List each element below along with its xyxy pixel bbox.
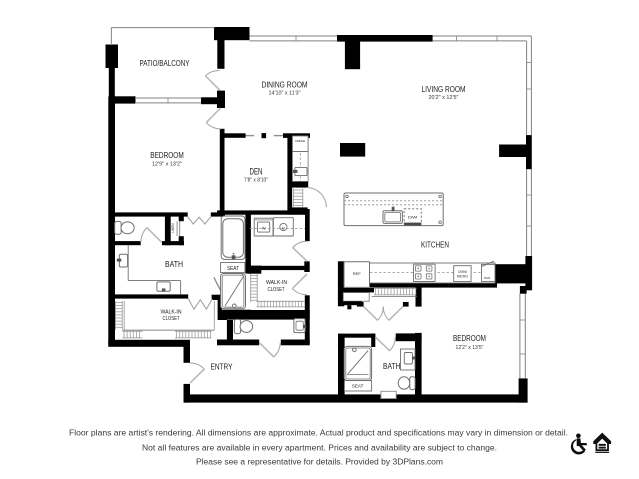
svg-text:LINEN: LINEN [171, 223, 175, 233]
svg-text:12'9" x 13'2": 12'9" x 13'2" [152, 162, 182, 168]
svg-text:7'8" x 8'10": 7'8" x 8'10" [244, 177, 268, 183]
svg-text:PAN.: PAN. [484, 276, 491, 280]
svg-text:FRIDGE: FRIDGE [295, 139, 305, 143]
svg-text:BEDROOM: BEDROOM [150, 150, 184, 160]
svg-text:Please see a representative fo: Please see a representative for details.… [196, 457, 443, 466]
svg-text:DEN: DEN [250, 167, 263, 178]
svg-text:KITCHEN: KITCHEN [421, 240, 449, 250]
svg-text:CLOSET: CLOSET [163, 316, 180, 322]
svg-text:14'10" x 11'3": 14'10" x 11'3" [269, 91, 301, 97]
svg-text:Floor plans are artist's rende: Floor plans are artist's rendering. All … [69, 429, 568, 438]
svg-text:LIVING ROOM: LIVING ROOM [422, 84, 466, 94]
svg-text:MICRO: MICRO [457, 275, 468, 279]
svg-text:W: W [262, 225, 266, 230]
svg-text:CLOSET: CLOSET [268, 287, 285, 293]
svg-text:ENTRY: ENTRY [211, 363, 234, 372]
svg-text:WALK-IN: WALK-IN [266, 280, 287, 286]
svg-text:12'2" x 13'5": 12'2" x 13'5" [456, 345, 484, 351]
svg-text:DW: DW [408, 215, 417, 220]
svg-text:REF: REF [353, 271, 362, 276]
svg-text:BEDROOM: BEDROOM [453, 333, 486, 343]
svg-text:Not all features are available: Not all features are available in every … [142, 444, 497, 453]
svg-text:BATH: BATH [165, 259, 183, 269]
svg-text:OVN/: OVN/ [458, 270, 467, 274]
svg-text:20'2" x 12'5": 20'2" x 12'5" [429, 95, 459, 101]
svg-text:D: D [282, 225, 285, 230]
svg-text:SEAT: SEAT [227, 266, 239, 272]
svg-text:PATIO/BALCONY: PATIO/BALCONY [140, 59, 191, 68]
svg-text:DINING ROOM: DINING ROOM [262, 79, 308, 89]
svg-text:SEAT: SEAT [352, 383, 364, 389]
svg-text:BATH: BATH [383, 361, 401, 371]
svg-text:WALK-IN: WALK-IN [161, 310, 182, 316]
